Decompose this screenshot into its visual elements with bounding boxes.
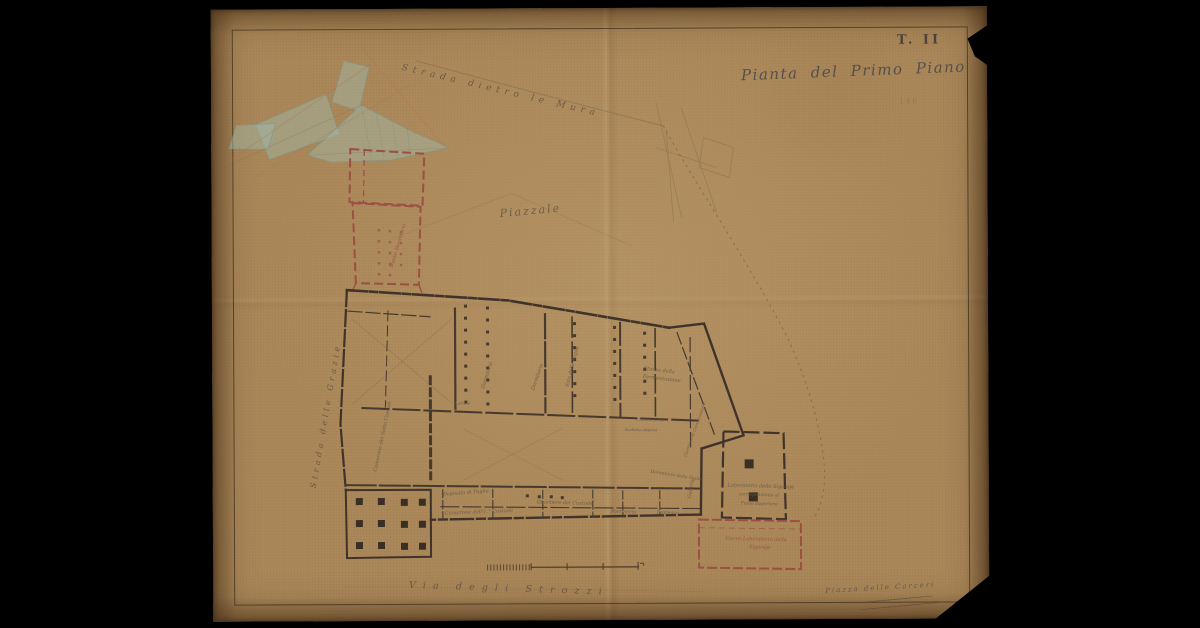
room-label: Scaletta interna: [624, 427, 657, 432]
plate-number: T. II: [897, 33, 941, 48]
construction-lines: [351, 193, 632, 481]
room-label: Latrine: [455, 401, 470, 406]
room-label: Piano Superiore: [741, 501, 778, 507]
pillar-grid: [356, 498, 426, 550]
plan-drawing: [211, 6, 990, 621]
interior-walls: [345, 307, 716, 519]
paper-sheet: T. II Pianta del Primo Piano 146 Strada …: [211, 6, 990, 621]
room-label: Sigaraje: [749, 544, 770, 551]
room-label: Portineria: [611, 509, 636, 515]
building-perimeter: [340, 288, 744, 558]
pencil-sketch: [656, 102, 734, 222]
inventory-stamp: 146: [899, 97, 919, 106]
pencil-curve: [663, 125, 825, 520]
red-annex: [349, 149, 425, 293]
scanned-plan-sheet: T. II Pianta del Primo Piano 146 Strada …: [0, 0, 1200, 628]
room-label: Ingresso: [657, 510, 679, 517]
room-label: Camera forte: [636, 417, 663, 422]
scale-bar: [487, 562, 644, 571]
